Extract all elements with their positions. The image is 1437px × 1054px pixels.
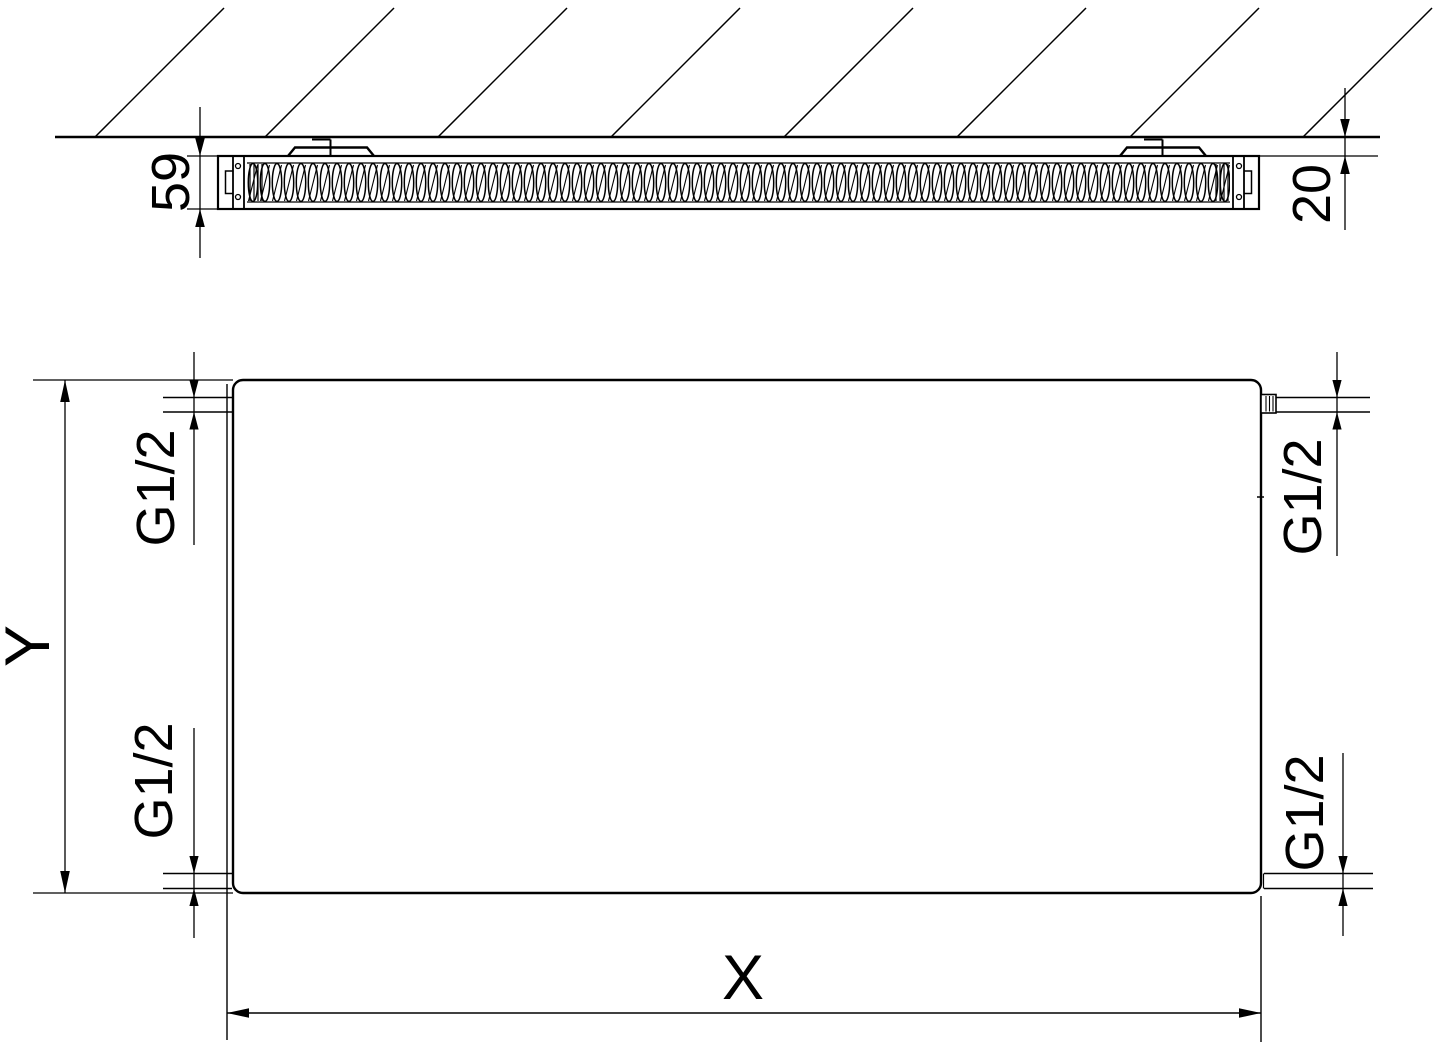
depth-dimension-label: 59 [141,152,201,212]
mounting-bracket-right [1120,140,1206,157]
arrowhead [189,889,198,907]
arrowhead [1332,412,1341,430]
connection-dimension-top-right: G1/2 [1273,352,1370,556]
arrowhead [60,380,70,402]
arrowhead [60,871,70,893]
wall-gap-dimension: 20 [1259,88,1378,230]
arrowhead [1338,856,1347,874]
connection-label-top-left: G1/2 [126,429,186,546]
connection-stub-top-right [1261,395,1276,414]
connection-label-top-right: G1/2 [1273,438,1333,555]
width-dimension: X [227,943,1261,1018]
drawing-canvas: 59 20 [0,0,1437,1049]
height-dimension-label: Y [0,625,63,667]
wall-gap-dimension-label: 20 [1282,164,1342,224]
mounting-bracket-left [288,140,374,157]
connection-label-bottom-right: G1/2 [1275,754,1335,871]
arrowhead [1338,889,1347,907]
arrowhead [1340,119,1350,137]
connection-dimension-bottom-left: G1/2 [124,722,232,938]
convector-fins [247,162,1230,203]
connection-dimension-bottom-right: G1/2 [1264,753,1373,936]
width-dimension-label: X [722,943,764,1013]
connection-label-bottom-left: G1/2 [124,722,184,839]
depth-dimension: 59 [141,107,217,258]
wall-hatch [95,8,1432,137]
arrowhead [227,1008,249,1018]
arrowhead [189,380,198,398]
radiator-technical-drawing: 59 20 [0,0,1437,1049]
section-view: 59 20 [55,8,1432,258]
arrowhead [1332,380,1341,398]
arrowhead [189,412,198,430]
connection-dimension-top-left: G1/2 [126,352,232,547]
arrowhead [189,856,198,874]
height-dimension: Y [0,380,233,893]
arrowhead [1239,1008,1261,1018]
front-view: Y X G1/2 [0,352,1373,1042]
radiator-front-panel [233,380,1261,893]
